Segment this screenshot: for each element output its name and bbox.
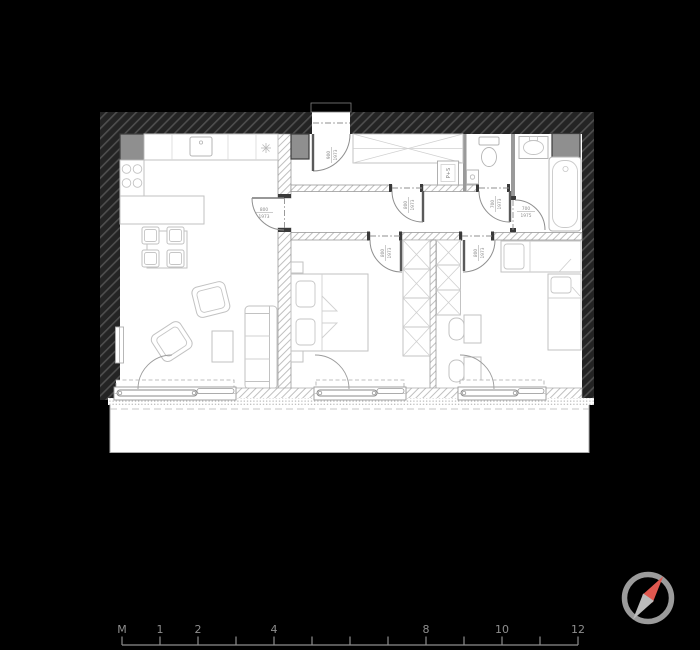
sofa xyxy=(245,306,277,389)
floor-plan-canvas: P+S xyxy=(0,0,700,650)
hob-symbol-icon xyxy=(261,143,271,153)
svg-text:1973: 1973 xyxy=(497,198,503,209)
wall-bedroom1-top-left xyxy=(291,233,370,241)
desk-chair-1 xyxy=(449,318,464,340)
radiator xyxy=(116,327,124,363)
scale-mark-4: 4 xyxy=(271,623,278,636)
wall-hall-corridor-right xyxy=(423,185,478,192)
svg-text:700: 700 xyxy=(490,200,496,208)
wc-sink xyxy=(467,170,479,184)
wall-wc-bath-divider xyxy=(511,134,515,200)
bathroom-shaft-box xyxy=(552,134,580,159)
double-bed xyxy=(291,274,368,351)
kitchen-sink xyxy=(190,137,212,156)
bathtub xyxy=(549,157,581,231)
svg-text:800: 800 xyxy=(473,249,479,257)
wall-hall-corridor-left xyxy=(291,185,392,192)
svg-text:1973: 1973 xyxy=(480,247,486,258)
nightstand-1 xyxy=(291,262,303,273)
bathroom-sink xyxy=(519,137,548,159)
washer-dryer-column: P+S xyxy=(438,161,459,185)
svg-text:1973: 1973 xyxy=(259,214,270,220)
svg-text:800: 800 xyxy=(260,207,268,213)
svg-text:800: 800 xyxy=(380,249,386,257)
scale-mark-10: 10 xyxy=(495,623,509,636)
scale-unit-label: M xyxy=(117,623,127,636)
svg-text:1975: 1975 xyxy=(521,213,532,219)
svg-text:1973: 1973 xyxy=(410,199,416,210)
svg-text:800: 800 xyxy=(403,201,409,209)
nightstand-2 xyxy=(291,351,303,362)
single-bed-right xyxy=(548,274,581,350)
fridge-box xyxy=(120,134,144,160)
svg-text:700: 700 xyxy=(522,206,530,212)
wall-bedroom2-top-right xyxy=(494,233,582,241)
wall-bedroom-divider xyxy=(430,240,436,389)
washer-dryer-label: P+S xyxy=(446,168,452,178)
wall-kitchen-divider-lower xyxy=(278,228,291,389)
coffee-table xyxy=(212,331,233,362)
svg-text:900: 900 xyxy=(326,151,332,159)
hall-shaft-box xyxy=(291,134,309,159)
wall-right xyxy=(582,112,594,402)
wall-bedrooms-top-middle xyxy=(402,233,462,241)
desk-1 xyxy=(464,315,481,343)
single-bed-top xyxy=(501,241,581,272)
kitchen-island xyxy=(120,196,204,224)
svg-text:1973: 1973 xyxy=(333,149,339,160)
svg-text:1973: 1973 xyxy=(387,247,393,258)
wall-kitchen-divider-upper xyxy=(278,134,291,198)
scale-mark-1: 1 xyxy=(157,623,164,636)
scale-mark-12: 12 xyxy=(571,623,585,636)
scale-mark-8: 8 xyxy=(423,623,430,636)
wardrobe-bedroom2 xyxy=(437,240,461,315)
scale-mark-2: 2 xyxy=(195,623,202,636)
hall-wardrobe xyxy=(353,134,463,163)
desk-chair-2 xyxy=(449,360,464,382)
wall-wc-west xyxy=(463,134,467,192)
balcony-floor xyxy=(110,405,589,453)
dining-area xyxy=(142,227,187,268)
wardrobe-bedroom1 xyxy=(403,240,430,356)
